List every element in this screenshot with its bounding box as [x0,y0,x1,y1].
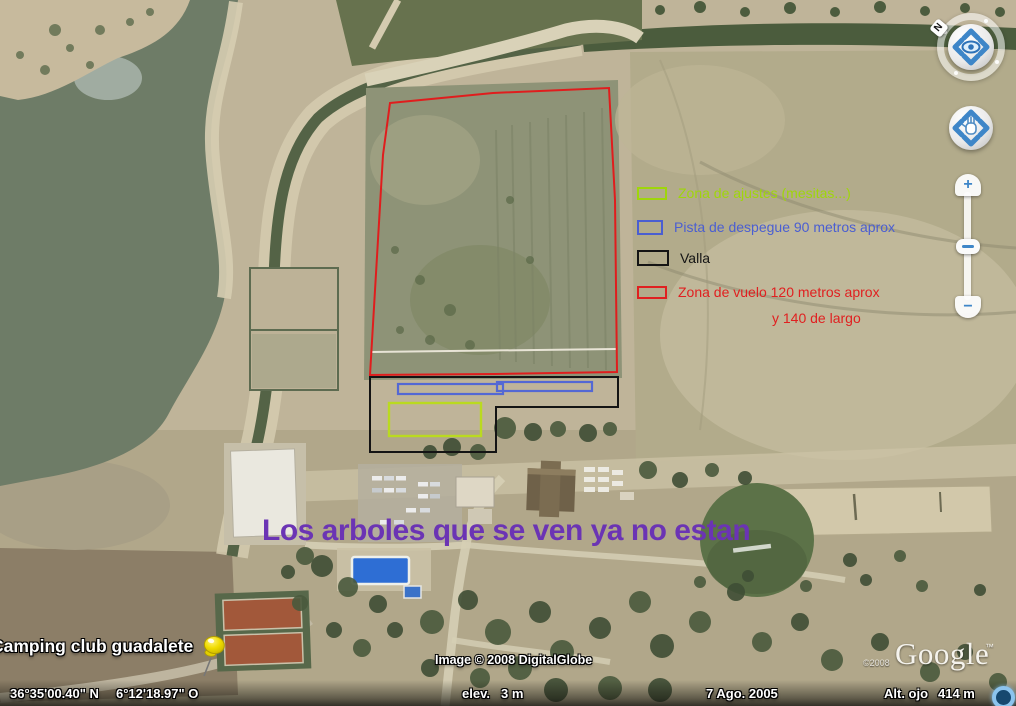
look-left-arrow-icon [955,40,962,54]
look-down-arrow-icon [964,56,978,63]
move-joystick[interactable] [949,106,993,150]
longitude-readout: 6°12'18.97" O [116,686,198,701]
logo-tm: ™ [985,642,994,652]
legend-swatch-fence [637,250,669,266]
legend-item: Valla [637,250,710,266]
legend-item: Zona de vuelo 120 metros aprox [637,285,880,300]
legend-label: Pista de despegue 90 metros aprox [674,220,895,235]
logo-word: Google [895,636,989,672]
legend-flight-zone-line2: y 140 de largo [772,310,861,326]
legend-swatch-flight-zone [637,286,667,299]
fence-outline[interactable] [370,377,618,452]
legend-label: Valla [680,251,710,266]
zoom-slider[interactable]: + − [955,174,981,318]
adjustment-zone-outline[interactable] [389,403,481,436]
flight-zone-outline[interactable] [370,88,617,375]
look-right-arrow-icon [980,40,987,54]
runway-outline-left[interactable] [398,384,503,394]
drawn-overlays [0,0,1016,706]
streaming-indicator-icon [992,686,1015,706]
ring-dot [984,19,988,23]
runway-outline-right[interactable] [497,382,592,391]
google-logo: ©2008 Google ™ [862,636,1012,676]
eye-altitude-value: 414 m [938,686,975,701]
legend-item: Pista de despegue 90 metros aprox [637,220,895,235]
move-right-arrow-icon [980,121,987,135]
imagery-date: 7 Ago. 2005 [706,686,778,701]
elevation-label: elev. [462,686,490,701]
placemark-pushpin-icon[interactable] [190,630,228,680]
look-up-arrow-icon [964,31,978,38]
legend-label: Zona de vuelo 120 metros aprox [678,285,880,300]
move-joystick-icons [949,106,993,150]
look-joystick-icons [948,24,994,70]
elevation-value: 3 m [501,686,523,701]
zoom-in-button[interactable]: + [955,174,981,196]
logo-year: ©2008 [863,658,890,668]
move-left-arrow-icon [955,121,962,135]
zoom-out-button[interactable]: − [955,296,981,318]
legend-label: Zona de ajustes (mesitas...) [678,186,851,201]
zoom-slider-handle[interactable] [956,239,980,254]
ring-dot [995,60,999,64]
latitude-readout: 36°35'00.40" N [10,686,99,701]
map-viewport[interactable]: Zona de ajustes (mesitas...) Pista de de… [0,0,1016,706]
imagery-attribution: Image © 2008 DigitalGlobe [435,653,592,667]
annotation-title: Los arboles que se ven ya no estan [262,514,750,548]
legend-swatch-runway [637,220,663,235]
move-down-arrow-icon [964,137,978,144]
ring-dot [954,71,958,75]
eye-altitude-label: Alt. ojo [884,686,928,701]
eye-icon [963,42,980,53]
look-joystick[interactable] [948,24,994,70]
placemark-label: Camping club guadalete [0,636,193,657]
legend-item: Zona de ajustes (mesitas...) [637,186,851,201]
legend-swatch-adjustment-zone [637,187,667,200]
